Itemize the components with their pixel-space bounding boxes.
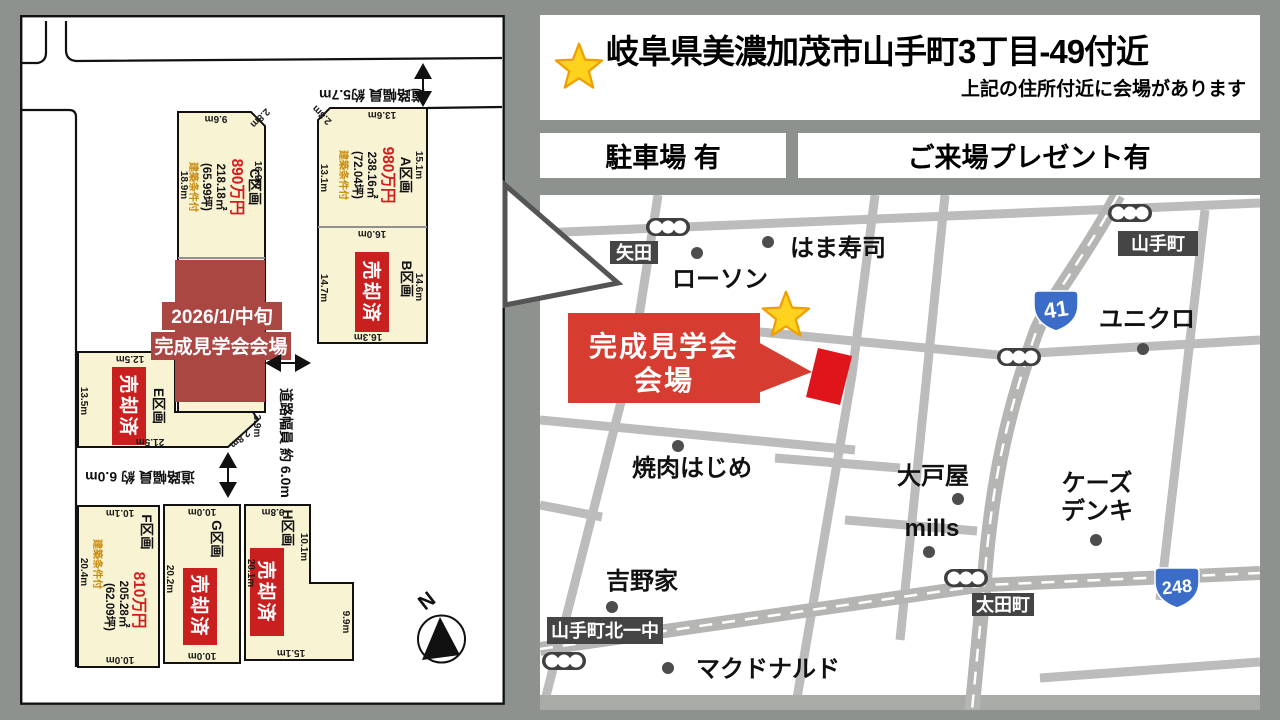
route-41-number: 41 — [1042, 295, 1070, 323]
venue-label-1: 完成見学会 — [589, 330, 739, 362]
plot-f-price: 810万円 — [130, 572, 148, 629]
access-map-drawing: 41 248 矢田 山手町 太田町 山手町北一中 ローソン はま寿司 ユニクロ … — [540, 195, 1260, 710]
plot-a-price: 980万円 — [379, 147, 397, 204]
plot-c-price: 890万円 — [228, 159, 246, 216]
yoshinoya-dot — [606, 601, 618, 613]
access-map: 41 248 矢田 山手町 太田町 山手町北一中 ローソン はま寿司 ユニクロ … — [540, 195, 1260, 710]
open-house-overlay — [175, 260, 265, 402]
plot-g-name: G区画 — [209, 520, 224, 558]
traffic-light-icon-otamachi — [944, 569, 988, 587]
dim-a-bottom: 16.0m — [358, 228, 386, 239]
star-icon — [552, 41, 606, 95]
dim-e-top: 12.5m — [116, 353, 144, 364]
plot-b-name: B区画 — [399, 261, 414, 298]
plot-f-condition: 建築条件付 — [91, 538, 104, 589]
plot-a-condition: 建築条件付 — [337, 149, 350, 200]
dim-g-left: 20.2m — [164, 565, 175, 593]
traffic-light-icon-yamatecho — [1108, 204, 1152, 222]
dim-e-diag-upper: 3.9m — [251, 415, 262, 438]
address-subtitle: 上記の住所付近に会場があります — [606, 74, 1246, 101]
dim-c-right: 16.9m — [252, 161, 263, 189]
dim-a-left: 13.1m — [318, 164, 329, 192]
ootoya-label: 大戸屋 — [897, 463, 969, 490]
plot-b-sold-label: 売却済 — [360, 260, 383, 323]
yakiniku-label: 焼肉はじめ — [632, 455, 752, 482]
plot-f-tsubo: (62.09坪) — [103, 583, 116, 631]
open-house-date: 2026/1/中旬 — [171, 305, 272, 328]
ksdenki-dot — [1090, 534, 1102, 546]
callout-wedge-shape — [505, 185, 618, 305]
header-text-wrap: 岐阜県美濃加茂市山手町3丁目‐49付近 上記の住所付近に会場があります — [606, 34, 1260, 101]
lawson-dot — [691, 247, 703, 259]
plot-h-sold-label: 売却済 — [255, 560, 278, 623]
dim-h-right-lower: 9.9m — [340, 611, 351, 634]
plot-a-name: A区画 — [398, 157, 413, 194]
yakiniku-dot — [672, 440, 684, 452]
ksdenki-label-1: ケーズ — [1062, 469, 1133, 497]
yoshinoya-label: 吉野家 — [606, 567, 678, 595]
dim-f-left: 20.4m — [78, 558, 89, 586]
plot-a-area: 238.16㎡ — [365, 152, 379, 199]
road-note-right: 道路幅員 約 6.0m — [278, 388, 294, 498]
venue-label-2: 会場 — [634, 365, 694, 396]
lawson-label: ローソン — [672, 266, 768, 293]
bottom-road-strip — [540, 695, 1260, 710]
dim-a-top: 13.6m — [368, 109, 396, 120]
plot-e-sold-label: 売却済 — [117, 374, 140, 437]
plot-g-sold-label: 売却済 — [188, 574, 211, 637]
dim-a-right: 15.1m — [413, 151, 424, 179]
dim-b-right: 14.6m — [413, 273, 424, 301]
dim-b-left: 14.7m — [318, 274, 329, 302]
mills-label: mills — [905, 515, 960, 542]
mcdonalds-label: マクドナルド — [696, 656, 840, 683]
dim-g-top: 10.0m — [188, 506, 216, 517]
header: 岐阜県美濃加茂市山手町3丁目‐49付近 上記の住所付近に会場があります — [540, 15, 1260, 120]
hamazushi-dot — [762, 236, 774, 248]
dim-c-left: 18.9m — [178, 171, 189, 199]
site-plan-drawing: 2026/1/中旬 完成見学会会場 C区画 890万円 218.18㎡ (65.… — [20, 15, 505, 705]
plot-f-name: F区画 — [139, 514, 154, 549]
kitaichichu-label: 山手町北一中 — [551, 620, 659, 641]
site-plan-panel: 2026/1/中旬 完成見学会会場 C区画 890万円 218.18㎡ (65.… — [20, 15, 505, 705]
route-248-number: 248 — [1161, 575, 1193, 598]
road-note-top: 道路幅員 約5.7m — [319, 87, 425, 103]
mills-dot — [923, 546, 935, 558]
address-title: 岐阜県美濃加茂市山手町3丁目‐49付近 — [606, 34, 1246, 70]
plot-c-area: 218.18㎡ — [214, 164, 228, 211]
otamachi-label: 太田町 — [976, 594, 1030, 615]
dim-f-bottom: 10.0m — [106, 654, 134, 665]
yamatecho-label: 山手町 — [1131, 233, 1185, 254]
road-note-bottom: 道路幅員 約 6.0m — [85, 469, 195, 485]
plot-c-tsubo: (65.99坪) — [200, 163, 213, 211]
ootoya-dot — [952, 493, 964, 505]
ksdenki-label-2: デンキ — [1061, 497, 1133, 525]
plot-e-name: E区画 — [151, 388, 166, 424]
uniqlo-label: ユニクロ — [1099, 306, 1195, 333]
dim-e-left: 13.5m — [78, 387, 89, 415]
open-house-label: 完成見学会会場 — [154, 335, 287, 358]
dim-h-right-upper: 10.1m — [298, 533, 309, 561]
traffic-light-icon-yada — [646, 218, 690, 236]
uniqlo-dot — [1137, 343, 1149, 355]
dim-h-top: 9.8m — [261, 506, 284, 517]
mcdonalds-dot — [662, 662, 674, 674]
dim-h-bottom: 15.1m — [277, 647, 305, 658]
dim-h-left: 20.1m — [245, 559, 256, 587]
dim-g-bottom: 10.0m — [188, 650, 216, 661]
traffic-light-icon-kitaichichu — [542, 652, 586, 670]
hamazushi-label: はま寿司 — [790, 234, 886, 262]
dim-e-bottom: 21.5m — [136, 436, 164, 447]
plot-a-tsubo: (72.04坪) — [351, 151, 364, 199]
dim-c-top: 9.6m — [204, 113, 227, 124]
dim-f-top: 10.1m — [106, 507, 134, 518]
present-badge: ご来場プレゼント有 — [798, 133, 1260, 178]
traffic-light-icon-r41 — [997, 348, 1041, 366]
dim-b-bottom: 16.3m — [354, 331, 382, 342]
plot-f-area: 205.28㎡ — [117, 581, 131, 628]
callout-wedge — [498, 168, 634, 320]
